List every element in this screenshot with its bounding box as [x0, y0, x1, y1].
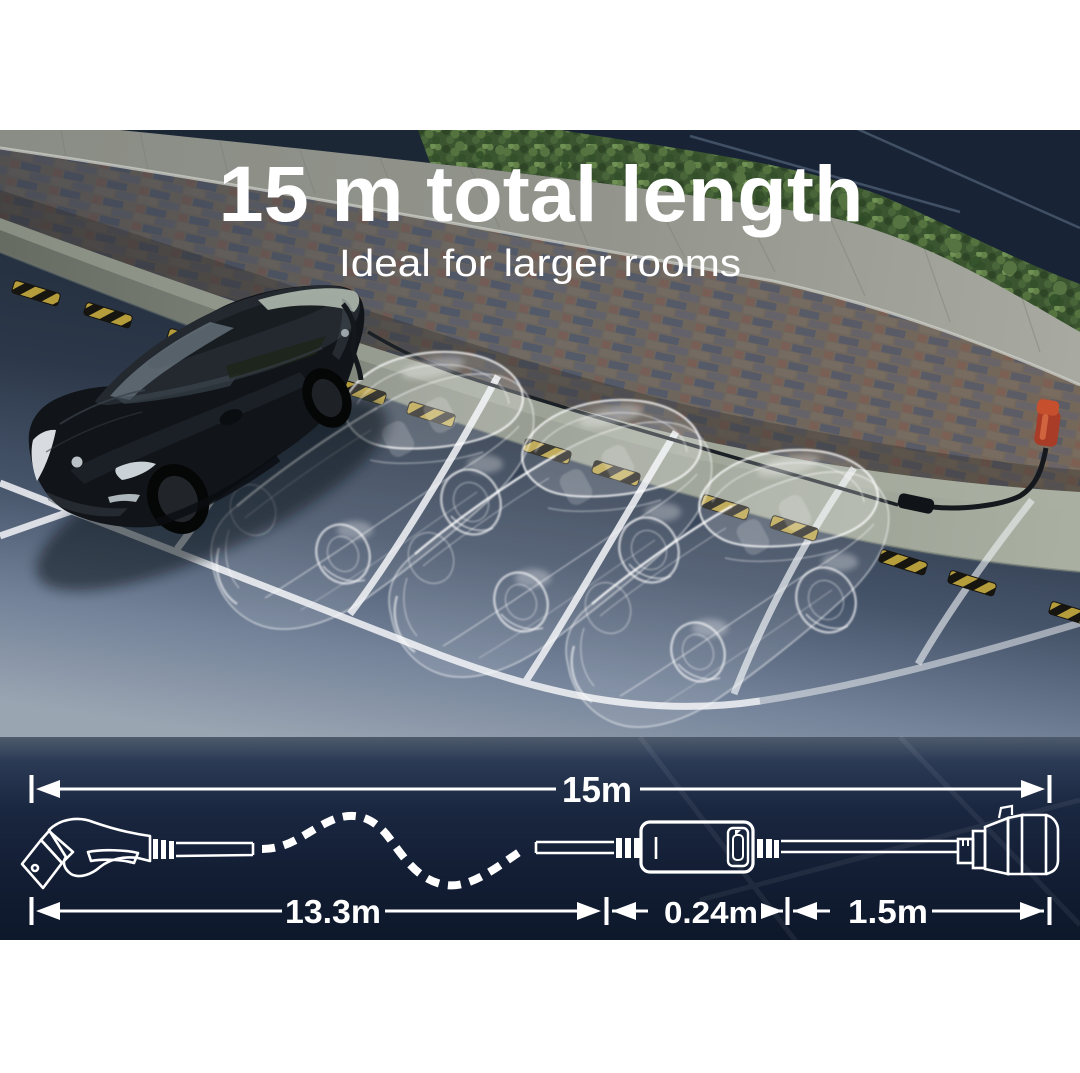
- svg-text:0.24m: 0.24m: [664, 895, 758, 930]
- svg-text:15 m total length: 15 m total length: [219, 149, 864, 238]
- svg-text:Ideal for larger rooms: Ideal for larger rooms: [339, 243, 741, 285]
- svg-text:15m: 15m: [562, 769, 632, 810]
- svg-text:13.3m: 13.3m: [285, 893, 381, 930]
- svg-text:1.5m: 1.5m: [848, 893, 928, 930]
